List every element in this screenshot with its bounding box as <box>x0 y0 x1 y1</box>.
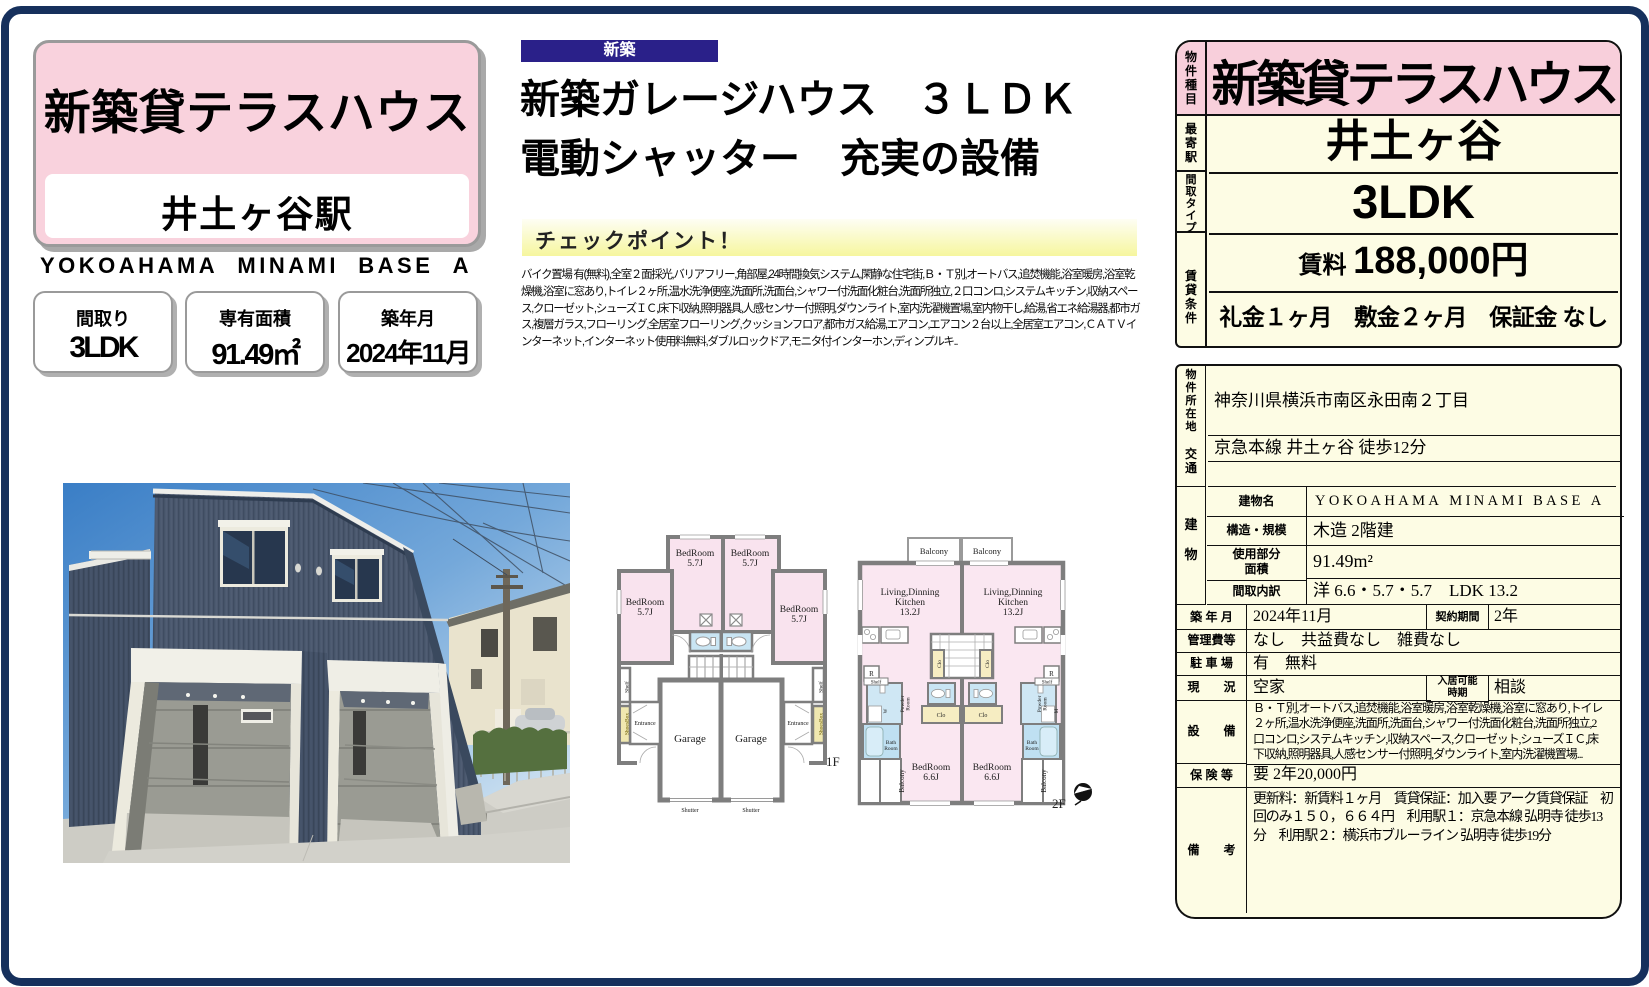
svg-text:Balcony: Balcony <box>1040 769 1048 793</box>
svg-text:Living,Dinning: Living,Dinning <box>881 588 940 598</box>
svg-text:Room: Room <box>1043 697 1049 711</box>
svg-text:Shelf: Shelf <box>1042 681 1053 686</box>
svg-text:Kitchen: Kitchen <box>998 598 1028 608</box>
svg-text:Shutter: Shutter <box>681 808 698 814</box>
svg-text:Room: Room <box>1025 746 1039 752</box>
svg-text:Room: Room <box>884 746 898 752</box>
svg-text:Balcony: Balcony <box>920 546 949 556</box>
svg-text:5.7J: 5.7J <box>791 615 807 625</box>
svg-text:Shelf: Shelf <box>818 681 825 693</box>
svg-text:Entrance: Entrance <box>634 721 656 727</box>
svg-text:ShoesBox: ShoesBox <box>625 713 631 736</box>
svg-text:6.6J: 6.6J <box>984 773 1000 783</box>
svg-text:Shutter: Shutter <box>742 808 759 814</box>
svg-text:1F: 1F <box>826 754 840 769</box>
svg-text:ShoesBox: ShoesBox <box>819 713 825 736</box>
svg-text:Shelf: Shelf <box>624 681 631 693</box>
svg-text:R: R <box>1049 670 1054 678</box>
svg-text:BedRoom: BedRoom <box>912 763 951 773</box>
svg-text:6.6J: 6.6J <box>923 773 939 783</box>
svg-text:Clo: Clo <box>937 660 943 668</box>
svg-text:BedRoom: BedRoom <box>973 763 1012 773</box>
svg-text:Garage: Garage <box>674 733 706 745</box>
svg-text:13.2J: 13.2J <box>900 608 921 618</box>
svg-text:5.7J: 5.7J <box>742 559 758 569</box>
svg-text:Clo: Clo <box>979 713 988 719</box>
svg-text:Clo: Clo <box>937 713 946 719</box>
svg-text:13.2J: 13.2J <box>1003 608 1024 618</box>
svg-text:5.7J: 5.7J <box>687 559 703 569</box>
svg-text:BedRoom: BedRoom <box>780 605 819 615</box>
svg-text:Balcony: Balcony <box>973 546 1002 556</box>
svg-text:Entrance: Entrance <box>787 721 809 727</box>
svg-text:Clo: Clo <box>985 660 991 668</box>
svg-text:M: M <box>1055 708 1060 713</box>
svg-text:2F: 2F <box>1052 796 1066 811</box>
svg-text:Shelf: Shelf <box>871 681 882 686</box>
svg-text:Garage: Garage <box>735 733 767 745</box>
svg-text:BedRoom: BedRoom <box>676 549 715 559</box>
svg-text:Living,Dinning: Living,Dinning <box>984 588 1043 598</box>
svg-text:W: W <box>884 708 889 713</box>
svg-text:BedRoom: BedRoom <box>731 549 770 559</box>
svg-text:Kitchen: Kitchen <box>895 598 925 608</box>
svg-text:Balcony: Balcony <box>898 769 906 793</box>
svg-text:R: R <box>869 670 874 678</box>
svg-text:BedRoom: BedRoom <box>626 598 665 608</box>
svg-text:Room: Room <box>906 697 912 711</box>
svg-text:5.7J: 5.7J <box>637 608 653 618</box>
